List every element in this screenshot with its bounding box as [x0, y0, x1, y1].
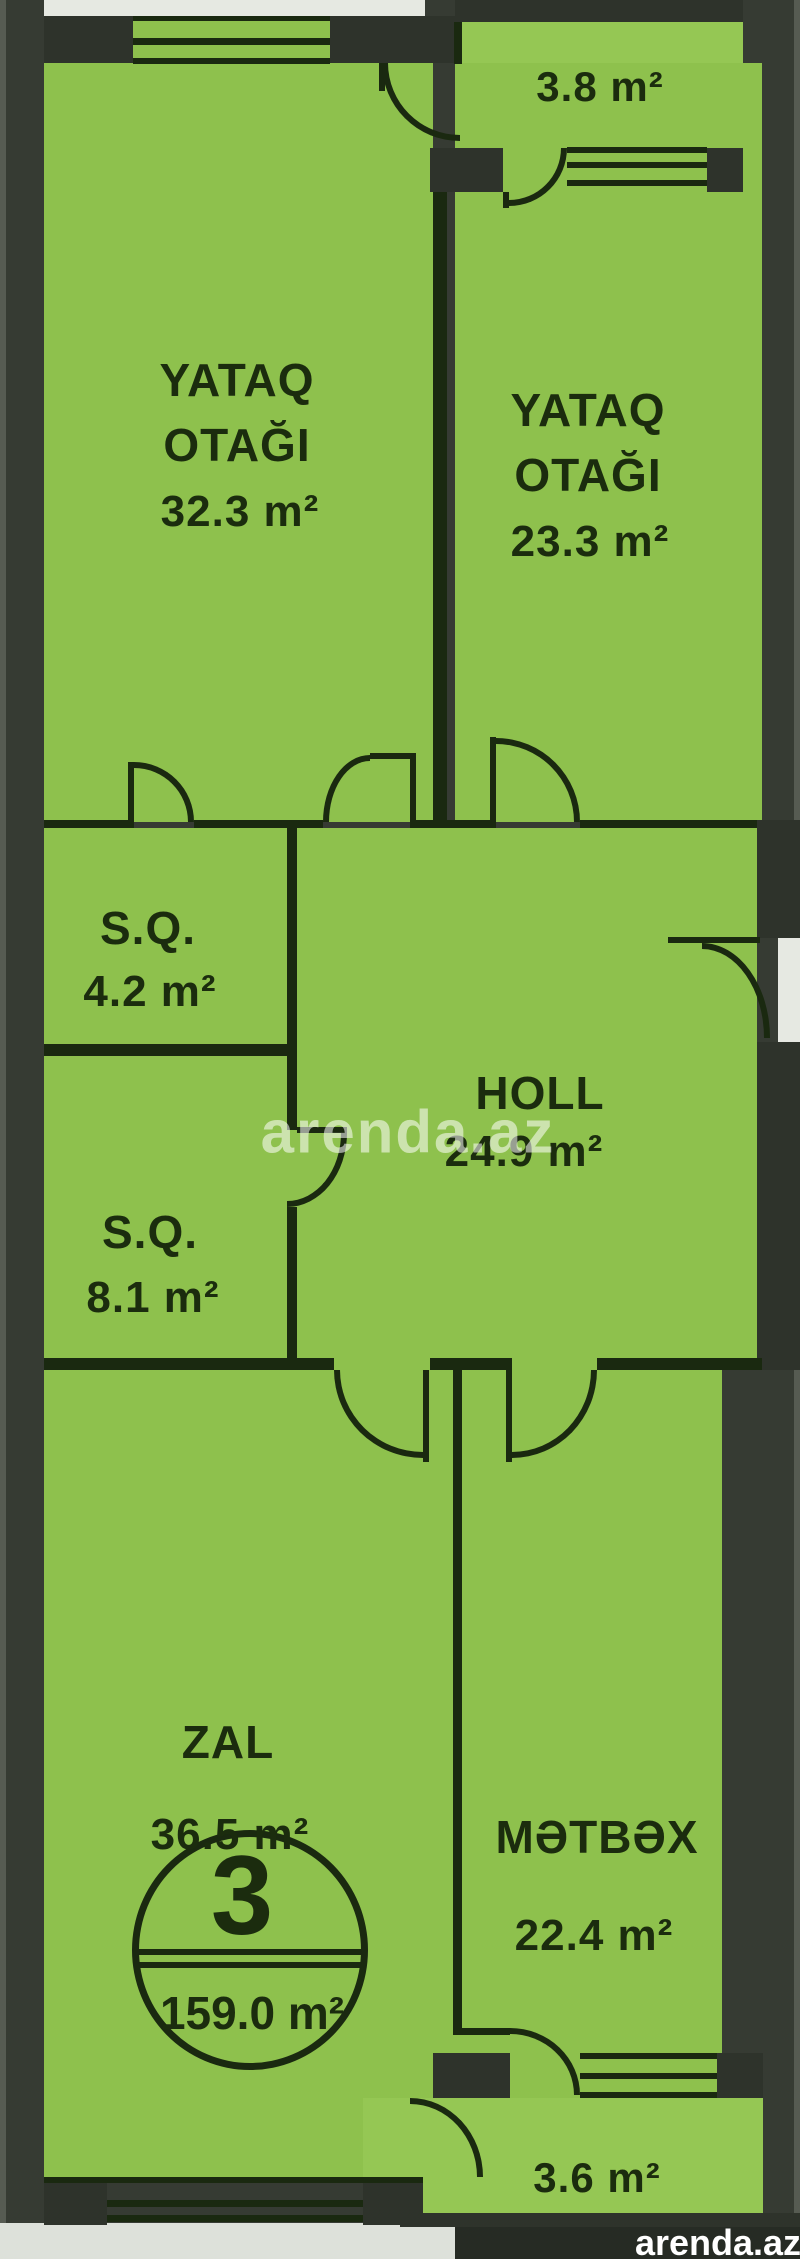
- label-balcony-top-area: 3.8 m²: [536, 63, 663, 111]
- label-sq-bottom-name: S.Q.: [102, 1205, 198, 1259]
- label-bedroom-left-name2: OTAĞI: [163, 418, 310, 472]
- wall-sq-divider-upper: [287, 828, 297, 1130]
- wall-sq-divider-lower: [287, 1207, 297, 1358]
- scan-edge-left: [0, 0, 6, 2259]
- label-balcony-bottom-area: 3.6 m²: [533, 2154, 660, 2202]
- watermark-center: arenda.az: [261, 1098, 556, 1167]
- unit-badge-line2: [136, 1962, 364, 1968]
- window-balcony-top-line3: [567, 180, 707, 186]
- wall-kitchen-bottom-left-block: [433, 2053, 510, 2098]
- label-sq-bottom-area: 8.1 m²: [86, 1273, 219, 1323]
- wall-w2-seg2: [430, 1358, 512, 1370]
- window-top-left-edge: [133, 16, 330, 21]
- label-bedroom-left-area: 32.3 m²: [161, 487, 320, 537]
- unit-badge-total-area: 159.0 m²: [160, 1986, 344, 2040]
- door-jamb-bedroom-left: [410, 753, 416, 828]
- wall-balcony-bottom-right-block: [707, 148, 743, 192]
- door-jamb-entrance: [668, 937, 760, 943]
- wall-w1-seg3: [416, 820, 496, 828]
- wall-w1-seg4: [580, 820, 762, 828]
- wall-top-left-block: [44, 16, 133, 63]
- label-bedroom-right-name1: YATAQ: [511, 383, 666, 437]
- label-zal-name: ZAL: [182, 1715, 274, 1769]
- label-bedroom-left-name1: YATAQ: [160, 353, 315, 407]
- wall-bedroom-divider: [433, 192, 447, 822]
- wall-w2-seg3: [597, 1358, 762, 1370]
- door-jamb-kitchen-balcony: [453, 2028, 510, 2035]
- label-bedroom-right-name2: OTAĞI: [514, 448, 661, 502]
- window-zal-mid-line: [107, 2200, 363, 2207]
- window-kitchen-line2: [580, 2073, 717, 2079]
- wall-top-center-block: [330, 16, 458, 63]
- wall-kitchen-bottom-right-block: [717, 2053, 763, 2098]
- window-zal-bottom-line: [107, 2215, 363, 2222]
- label-sq-top-area: 4.2 m²: [83, 967, 216, 1017]
- wall-sq-horizontal-divider: [44, 1044, 287, 1056]
- outside-entrance: [778, 938, 800, 1042]
- wall-w2-seg1: [44, 1358, 334, 1370]
- wall-balcony-top: [455, 0, 743, 22]
- door-arc-entrance: [702, 943, 770, 1038]
- window-kitchen-line3: [580, 2092, 717, 2098]
- floor-plan: 3.8 m² YATAQ OTAĞI 32.3 m² YATAQ OTAĞI 2…: [0, 0, 800, 2259]
- unit-badge-number: 3: [211, 1831, 273, 1960]
- wall-zal-metbex-divider: [453, 1370, 462, 2035]
- label-sq-top-name: S.Q.: [100, 901, 196, 955]
- wall-w1-seg2: [194, 820, 323, 828]
- wall-entrance-lower-block: [757, 1042, 800, 1370]
- wall-zal-window-left-block: [44, 2183, 107, 2225]
- label-metbex-name: MƏTBƏX: [495, 1810, 698, 1864]
- watermark-corner: arenda.az: [635, 2222, 800, 2259]
- wall-balcony-bottom-left-block: [430, 148, 503, 192]
- window-balcony-top-line1: [567, 147, 707, 153]
- label-metbex-area: 22.4 m²: [515, 1911, 674, 1961]
- window-kitchen-line1: [580, 2053, 717, 2059]
- wall-balcony-left-jamb: [454, 22, 462, 64]
- window-balcony-top-line2: [567, 162, 707, 168]
- wall-w1-seg1: [44, 820, 134, 828]
- outside-bottom-strip: [0, 2223, 455, 2259]
- window-top-left-bottom: [133, 58, 330, 64]
- window-top-left-mid: [133, 38, 330, 45]
- label-bedroom-right-area: 23.3 m²: [511, 517, 670, 567]
- door-leaf-zal: [423, 1370, 429, 1462]
- wall-entrance-upper-block: [757, 820, 800, 938]
